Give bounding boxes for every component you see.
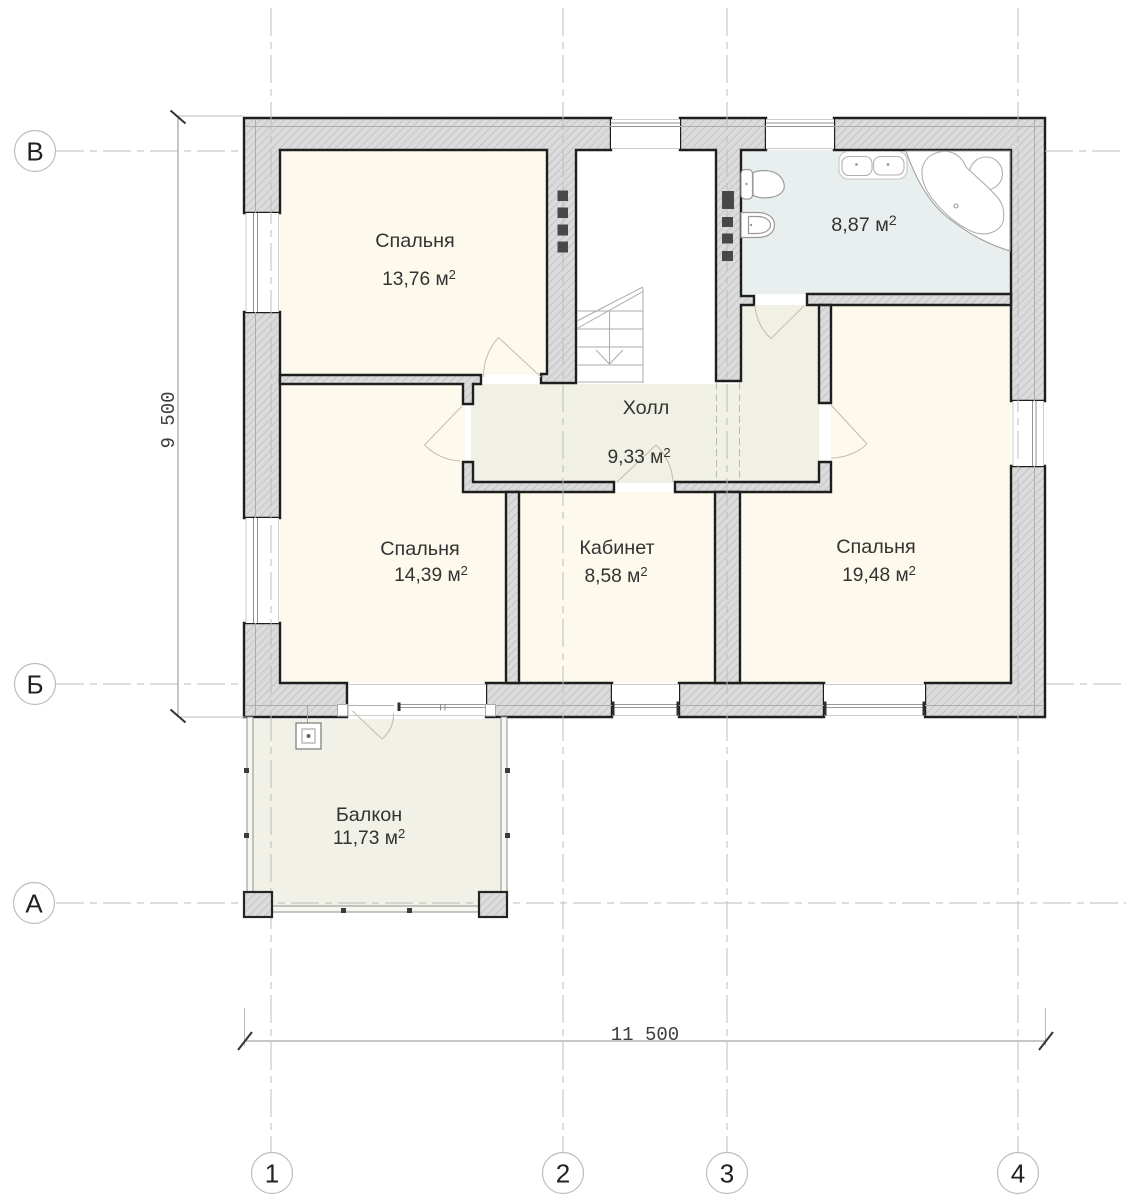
svg-text:Балкон: Балкон — [336, 804, 402, 826]
svg-text:Кабинет: Кабинет — [579, 537, 654, 559]
svg-text:1: 1 — [265, 1159, 279, 1189]
svg-text:Спальня: Спальня — [380, 538, 459, 560]
svg-text:19,48 м2: 19,48 м2 — [842, 563, 916, 586]
svg-text:Холл: Холл — [623, 397, 670, 419]
svg-text:В: В — [26, 137, 43, 167]
svg-text:2: 2 — [556, 1159, 570, 1189]
svg-text:Б: Б — [26, 670, 43, 700]
svg-text:14,39 м2: 14,39 м2 — [394, 563, 468, 586]
svg-text:3: 3 — [720, 1159, 734, 1189]
svg-text:А: А — [25, 889, 43, 919]
svg-text:4: 4 — [1011, 1159, 1025, 1189]
svg-text:8,58 м2: 8,58 м2 — [584, 564, 647, 587]
svg-text:9,33 м2: 9,33 м2 — [607, 445, 670, 468]
svg-text:11,73 м2: 11,73 м2 — [333, 826, 405, 849]
svg-text:8,87 м2: 8,87 м2 — [831, 212, 897, 236]
svg-text:11 500: 11 500 — [611, 1024, 679, 1046]
svg-text:13,76 м2: 13,76 м2 — [382, 267, 456, 290]
svg-text:Спальня: Спальня — [836, 536, 915, 558]
svg-text:9 500: 9 500 — [158, 391, 180, 448]
svg-text:Спальня: Спальня — [375, 230, 454, 252]
